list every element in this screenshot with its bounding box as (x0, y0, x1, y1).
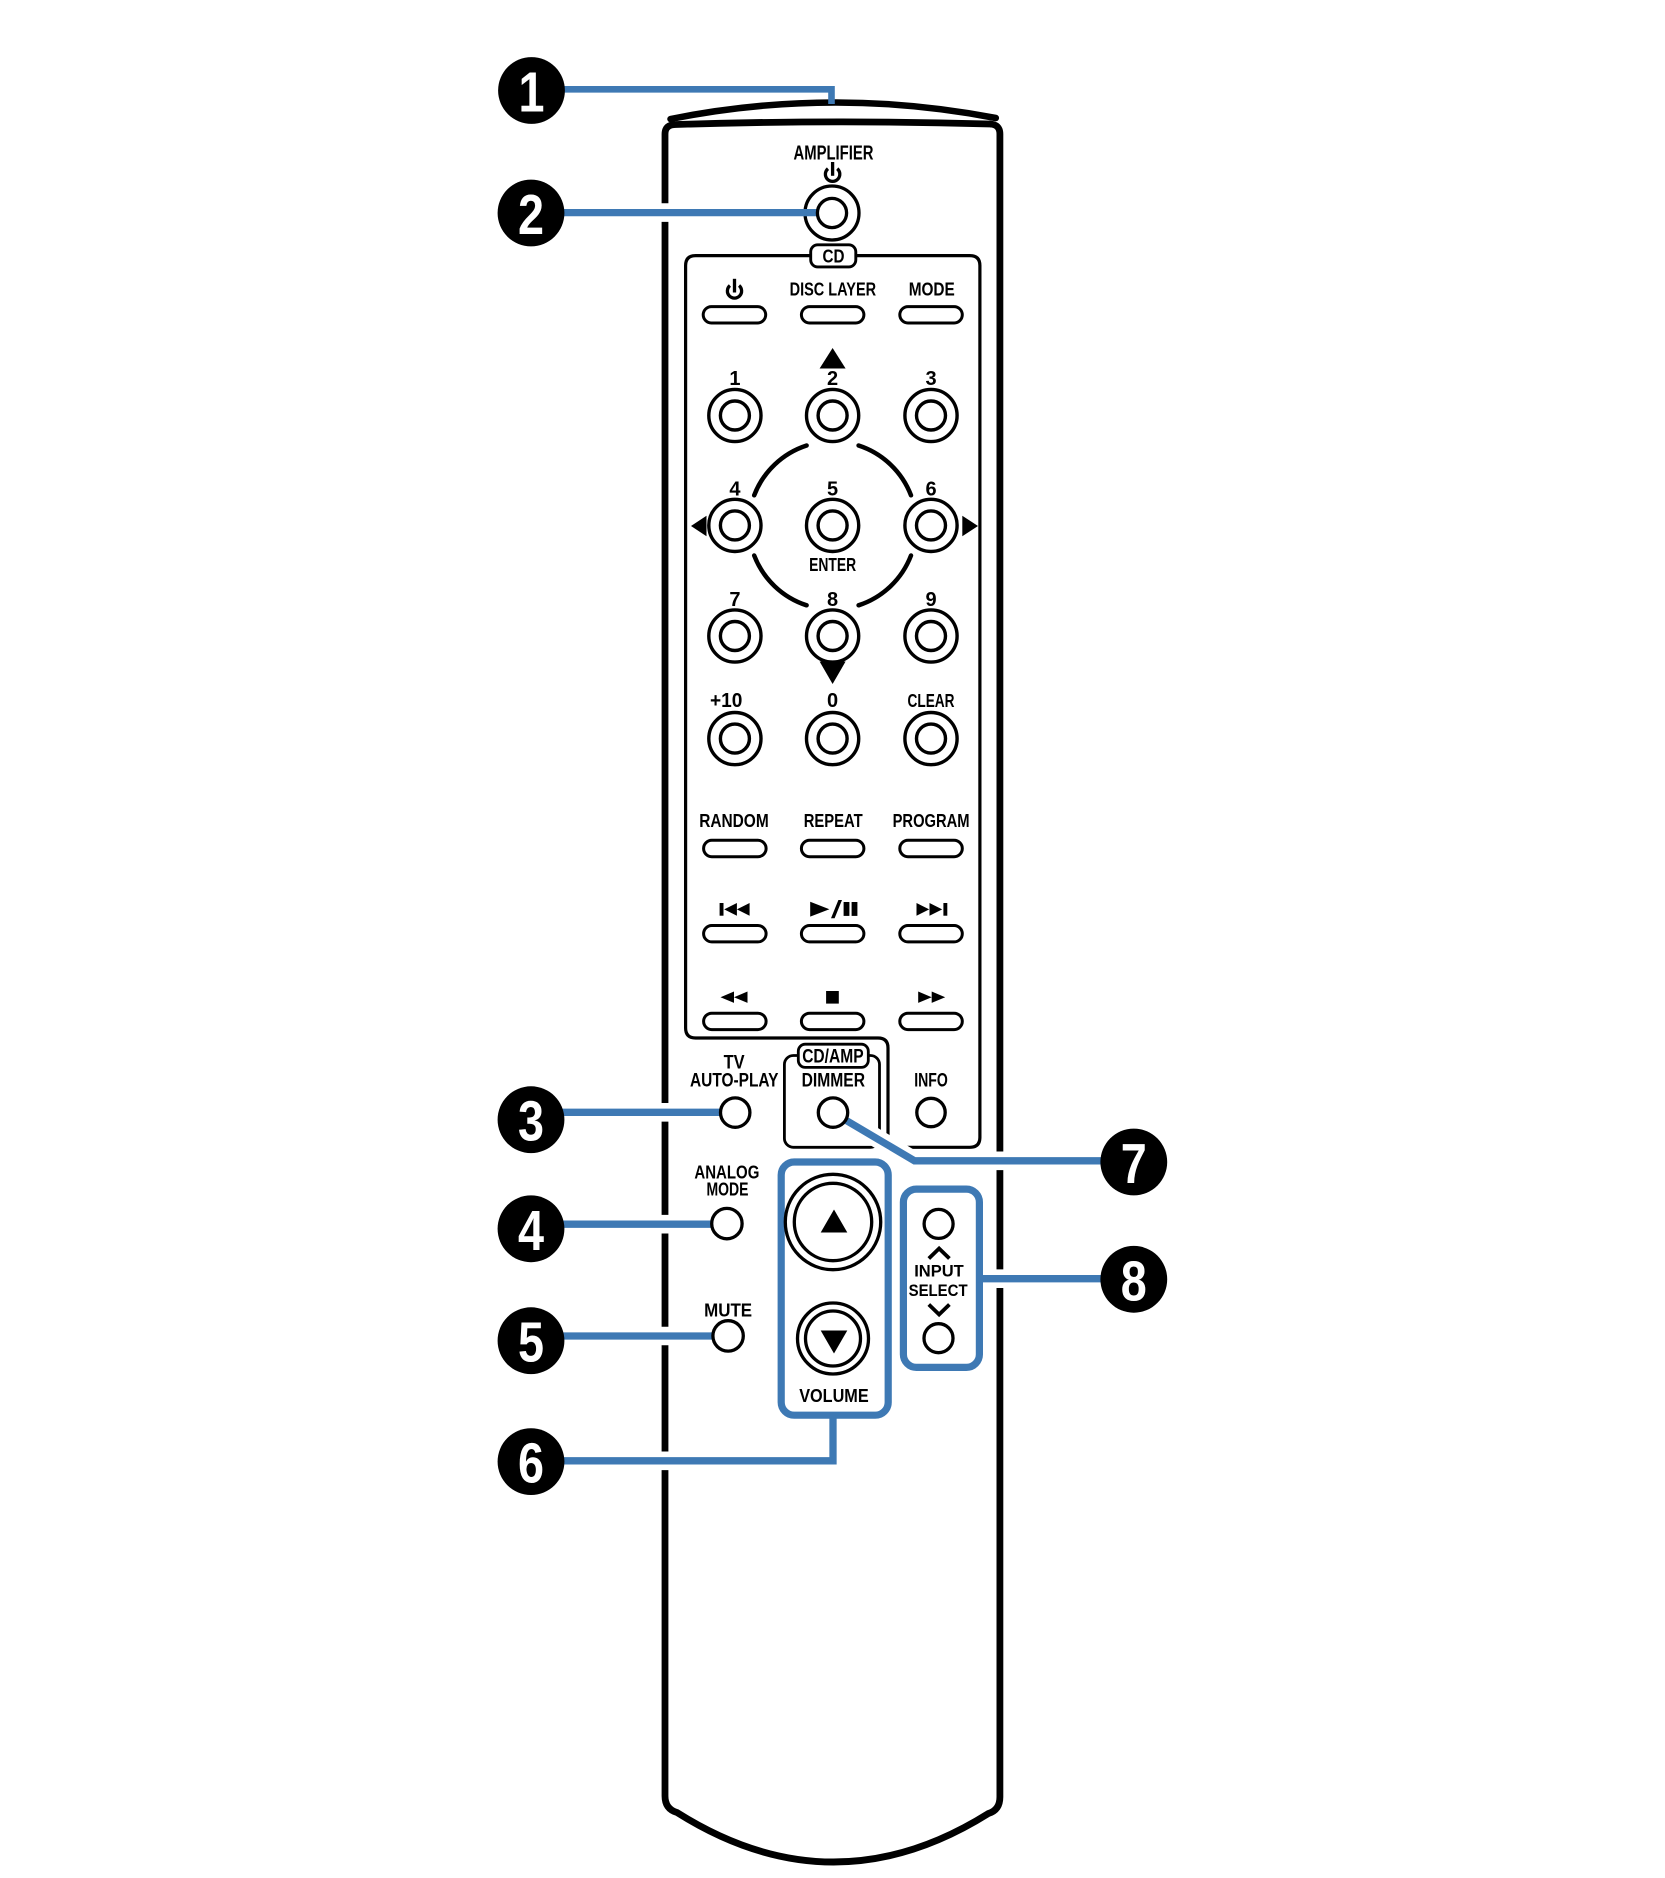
svg-text:INFO: INFO (914, 1070, 948, 1092)
svg-text:MODE: MODE (707, 1178, 749, 1199)
svg-text:6: 6 (925, 478, 936, 500)
svg-text:SELECT: SELECT (909, 1282, 968, 1300)
svg-text:5: 5 (518, 1311, 544, 1375)
svg-text:PROGRAM: PROGRAM (893, 811, 970, 831)
svg-text:7: 7 (1121, 1132, 1147, 1196)
svg-text:5: 5 (827, 478, 838, 500)
svg-text:DIMMER: DIMMER (802, 1070, 865, 1092)
svg-text:3: 3 (925, 368, 936, 390)
svg-text:REPEAT: REPEAT (804, 811, 863, 831)
svg-text:AUTO-PLAY: AUTO-PLAY (690, 1070, 779, 1092)
svg-text:4: 4 (729, 478, 741, 500)
svg-text:RANDOM: RANDOM (699, 811, 769, 831)
svg-text:CLEAR: CLEAR (908, 690, 955, 711)
svg-text:4: 4 (518, 1199, 544, 1263)
svg-text:AMPLIFIER: AMPLIFIER (794, 142, 874, 165)
svg-text:1: 1 (729, 368, 740, 390)
svg-text:ENTER: ENTER (809, 555, 856, 575)
svg-text:1: 1 (519, 61, 545, 125)
svg-text:6: 6 (518, 1432, 544, 1496)
svg-text:MODE: MODE (909, 279, 955, 300)
svg-text:2: 2 (827, 368, 838, 390)
svg-text:INPUT: INPUT (914, 1263, 964, 1281)
svg-text:VOLUME: VOLUME (799, 1386, 869, 1406)
svg-text:3: 3 (518, 1090, 544, 1154)
svg-text:2: 2 (518, 183, 544, 247)
svg-text:MUTE: MUTE (704, 1300, 752, 1321)
svg-text:CD: CD (823, 245, 845, 266)
svg-text:8: 8 (1121, 1249, 1147, 1313)
svg-text:CD/AMP: CD/AMP (802, 1046, 864, 1067)
svg-text:DISC LAYER: DISC LAYER (790, 279, 877, 300)
svg-text:+10: +10 (710, 690, 742, 712)
svg-text:9: 9 (925, 589, 936, 611)
svg-text:0: 0 (827, 690, 838, 712)
svg-text:7: 7 (729, 589, 740, 611)
svg-text:8: 8 (827, 589, 838, 611)
